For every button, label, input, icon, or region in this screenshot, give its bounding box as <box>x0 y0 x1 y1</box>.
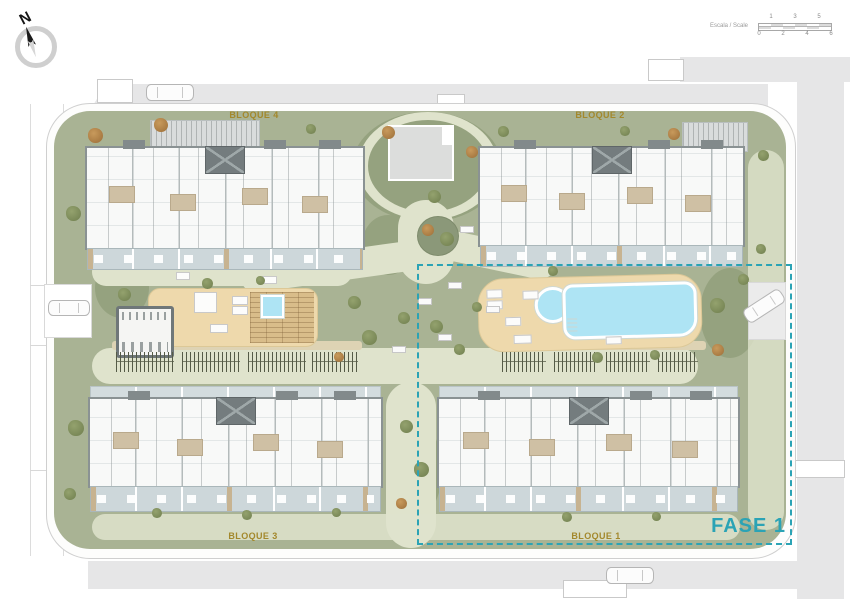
tree <box>242 510 252 520</box>
sun-lounger <box>232 296 248 305</box>
crossing-marking <box>648 59 684 81</box>
building-floorplan <box>478 146 745 247</box>
crossing-marking <box>793 460 845 478</box>
utility-pad <box>388 125 454 181</box>
tree <box>758 150 769 161</box>
scale-tick: 6 <box>829 31 832 37</box>
scale-bar-ruler <box>758 23 832 31</box>
sun-lounger <box>232 306 248 315</box>
parking-hedge <box>248 352 306 372</box>
scale-bar-label: Escala / Scale <box>710 23 748 29</box>
building-floorplan <box>88 397 383 488</box>
gym-building <box>116 306 174 358</box>
scale-tick: 5 <box>817 14 820 20</box>
label-bloque-3: BLOQUE 3 <box>193 531 313 541</box>
building-floorplan <box>85 146 365 250</box>
stair-core <box>205 146 245 174</box>
tree <box>756 244 766 254</box>
sun-lounger <box>176 272 190 280</box>
tree <box>422 224 434 236</box>
tree <box>396 498 407 509</box>
tree <box>306 124 316 134</box>
tree <box>64 488 76 500</box>
tree <box>152 508 162 518</box>
plunge-pool <box>261 295 284 318</box>
tree <box>68 420 84 436</box>
crossing-marking <box>97 79 133 103</box>
terraces <box>87 248 363 270</box>
phase-1-boundary <box>417 264 792 545</box>
scale-tick: 0 <box>757 31 760 37</box>
tree <box>498 126 509 137</box>
building-bloque-3 <box>88 386 383 512</box>
tree <box>466 146 478 158</box>
tree <box>398 312 410 324</box>
scale-tick: 4 <box>805 31 808 37</box>
stair-core <box>592 146 632 174</box>
scale-tick: 2 <box>781 31 784 37</box>
tree <box>620 126 630 136</box>
building-bloque-2 <box>478 140 745 267</box>
parking-hedge <box>116 352 174 372</box>
tree <box>334 352 344 362</box>
tree <box>348 296 361 309</box>
tree <box>154 118 168 132</box>
building-bloque-4 <box>85 140 365 270</box>
label-bloque-4: BLOQUE 4 <box>194 110 314 120</box>
road-right <box>797 57 844 599</box>
tree <box>256 276 265 285</box>
tree <box>440 232 454 246</box>
tree <box>400 420 413 433</box>
car <box>606 567 654 584</box>
tree <box>668 128 680 140</box>
tree <box>332 508 341 517</box>
scale-tick: 1 <box>769 14 772 20</box>
sun-lounger <box>210 324 228 333</box>
car <box>146 84 194 101</box>
tree <box>362 330 377 345</box>
label-bloque-2: BLOQUE 2 <box>540 110 660 120</box>
tree <box>88 128 103 143</box>
tree <box>118 288 131 301</box>
compass: N <box>8 8 64 70</box>
scale-bar: Escala / Scale 1 3 5 0 2 4 6 <box>710 14 842 40</box>
label-bloque-1: BLOQUE 1 <box>536 531 656 541</box>
scale-tick: 3 <box>793 14 796 20</box>
parking-hedge <box>182 352 240 372</box>
car <box>48 300 90 316</box>
sun-lounger <box>194 292 217 313</box>
bench <box>460 226 474 233</box>
tree <box>382 126 395 139</box>
stair-core <box>216 397 256 425</box>
tree <box>66 206 81 221</box>
site-plan-canvas: N Escala / Scale 1 3 5 0 2 4 6 <box>0 0 850 614</box>
tree <box>202 278 213 289</box>
road-bottom <box>88 561 822 589</box>
bench <box>392 346 406 353</box>
compass-needle-icon <box>15 26 57 68</box>
tree <box>428 190 441 203</box>
label-fase-1: FASE 1 <box>698 515 786 538</box>
